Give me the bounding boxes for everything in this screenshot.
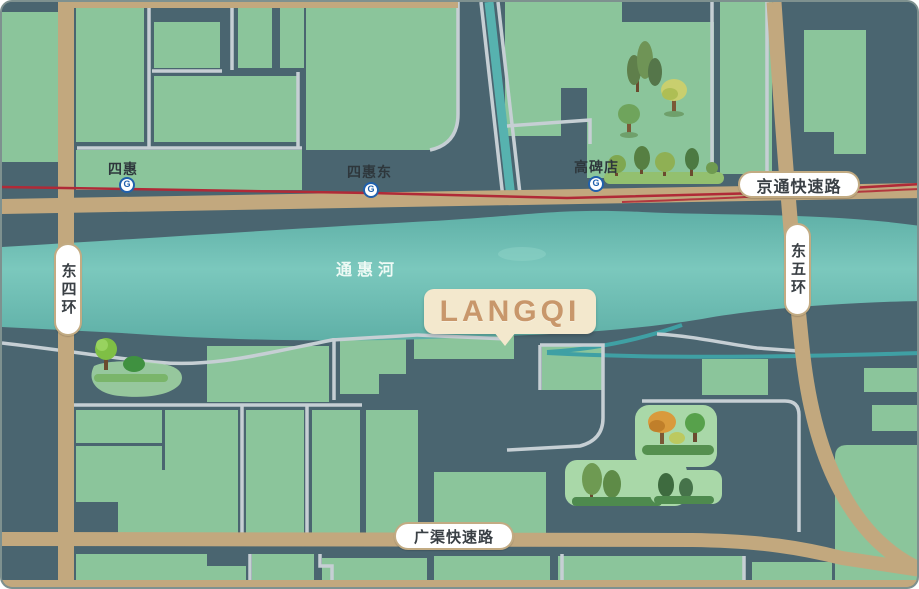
location-map: 通惠河 四惠 G 四惠东 G 高碑店 G 京通快速路 东五环 东四环 广渠快速路… [0,0,919,589]
bush-icon [123,356,145,372]
station-gaobeidian-label: 高碑店 [574,157,619,177]
station-sihui-label: 四惠 [108,159,138,179]
river-shallow-patch [498,247,546,261]
metro-icon: G [588,176,604,192]
road-label-dongwuhuan: 东五环 [784,223,811,316]
metro-icon: G [119,177,135,193]
bottom-edge-road [2,580,919,589]
road-label-guangqu: 广渠快速路 [394,522,514,550]
road-label-dongsihuan: 东四环 [54,243,82,336]
project-bubble: LANGQI [424,289,596,334]
station-sihuidong-label: 四惠东 [347,162,392,182]
road-label-jingtong: 京通快速路 [738,171,860,198]
bush-icon [669,432,685,444]
top-edge-road [58,2,458,8]
project-name: LANGQI [440,295,581,329]
metro-icon: G [363,182,379,198]
project-bubble-pointer [494,332,516,346]
river-label: 通惠河 [336,256,399,280]
